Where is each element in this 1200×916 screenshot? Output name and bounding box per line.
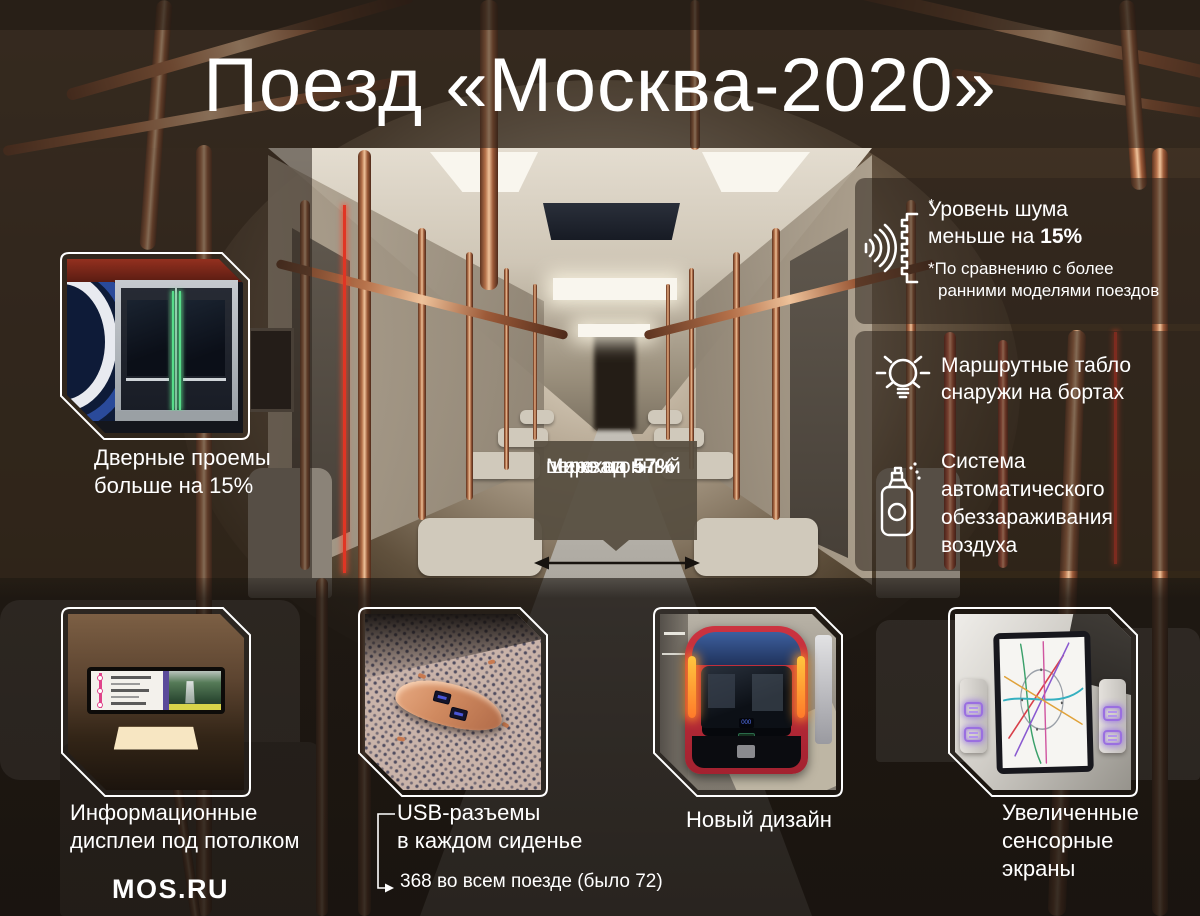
asterisk: * (929, 190, 934, 217)
spray-can-icon (874, 460, 926, 542)
door-led-strip (343, 205, 346, 573)
touchscreens-photo (955, 614, 1131, 790)
pointer-triangle (603, 540, 629, 551)
usb-socket-icon (964, 727, 983, 742)
headlight-strip (688, 656, 696, 718)
handrail-pole (689, 268, 694, 470)
train-front: 000|НЕКРАСОВКА 000 (685, 626, 808, 774)
usb-caption: USB-разъемы в каждом сиденье (397, 799, 582, 855)
gangway-callout-box: Межвагонный переход шире на 57% (534, 441, 697, 540)
seat (520, 410, 554, 424)
air-system-callout: Система автоматического обеззараживания … (941, 448, 1113, 560)
gangway-value: 57% (633, 455, 675, 478)
handrail-pole (533, 284, 537, 440)
seat-bench (694, 518, 818, 576)
noise-value: 15% (1040, 225, 1082, 248)
sound-dampening-icon (860, 210, 922, 288)
door-led-green (179, 291, 181, 409)
usb-port (433, 691, 452, 706)
handrail-pole (772, 228, 780, 520)
usb-note: 368 во всем поезде (было 72) (400, 870, 663, 894)
handrail-pole (666, 284, 670, 440)
mos-ru-logo: MOS.RU (112, 874, 229, 905)
handrail-pole (504, 268, 509, 470)
front-led: 000 (739, 718, 754, 728)
design-photo: 000|НЕКРАСОВКА 000 (660, 614, 836, 790)
red-stripe (67, 259, 243, 282)
usb-socket-icon (1103, 706, 1122, 721)
door-leaf-left (121, 288, 175, 409)
page-title: Поезд «Москва-2020» (0, 44, 1200, 128)
lightbulb-icon (872, 346, 934, 412)
handrail-pole (418, 228, 426, 520)
station-wall-logo (67, 282, 120, 421)
touchscreens-caption: Увеличенные сенсорные экраны (1002, 799, 1139, 883)
infographic-moscow-2020-train: Поезд «Москва-2020» Уровень шума меньше … (0, 0, 1200, 916)
usb-socket-icon (1103, 730, 1122, 745)
noise-footnote: *По сравнению с более ранними моделями п… (928, 258, 1159, 302)
door-photo (67, 259, 243, 433)
usb-port (449, 707, 468, 722)
metro-map (1000, 637, 1088, 768)
doors-caption: Дверные проемы больше на 15% (94, 444, 271, 500)
displays-photo (68, 614, 244, 790)
door-led-green (172, 291, 174, 409)
noise-line1: Уровень шума (928, 196, 1082, 223)
route-list-screen (91, 671, 165, 711)
ceiling-light-panel (114, 727, 198, 750)
displays-caption: Информационные дисплеи под потолком (70, 799, 299, 855)
route-boards-callout: Маршрутные табло снаружи на бортах (941, 352, 1131, 406)
carriage-side (815, 635, 833, 744)
door-leaf-right (177, 288, 231, 409)
seat (648, 410, 682, 424)
handrail-pole (466, 252, 473, 500)
noise-callout: Уровень шума меньше на 15%* (928, 196, 1082, 250)
usb-photo (365, 614, 541, 790)
touchscreen (994, 630, 1094, 773)
coupler (737, 745, 754, 758)
right-door (790, 228, 848, 558)
design-caption: Новый дизайн (686, 806, 832, 834)
bracket-arrow-icon (372, 810, 398, 894)
video-screen (163, 671, 221, 711)
ceiling-light (553, 278, 677, 300)
usb-socket-icon (964, 702, 983, 717)
handrail-pole (733, 252, 740, 500)
noise-line2: меньше на 15%* (928, 223, 1082, 250)
double-arrow-icon (532, 554, 702, 572)
far-corridor (594, 326, 636, 430)
ceiling-screen (543, 203, 680, 240)
seat-bench (418, 518, 542, 576)
info-display (87, 667, 224, 715)
headlight-strip (797, 656, 805, 718)
ceiling-light (578, 324, 650, 337)
door-frame (115, 280, 238, 421)
